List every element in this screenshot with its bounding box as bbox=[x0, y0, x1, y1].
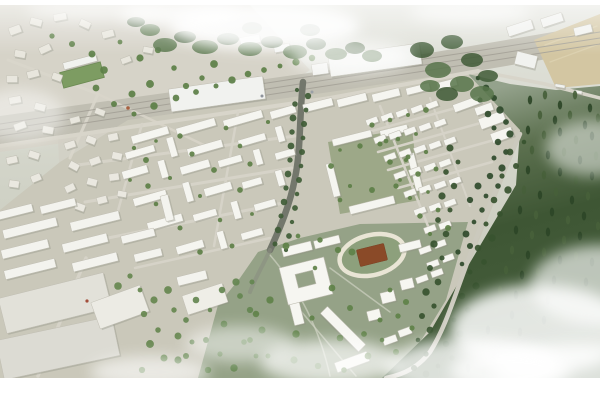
tree bbox=[467, 197, 473, 203]
tree bbox=[388, 288, 393, 293]
tree bbox=[193, 89, 199, 95]
conifer bbox=[562, 236, 566, 245]
accent-dot bbox=[311, 91, 314, 94]
tree bbox=[395, 313, 400, 318]
tree bbox=[296, 234, 301, 239]
tree bbox=[275, 227, 281, 233]
tree bbox=[214, 84, 219, 89]
tree bbox=[317, 237, 322, 242]
tree bbox=[154, 202, 159, 207]
tree bbox=[193, 297, 200, 304]
tree bbox=[396, 137, 400, 141]
tree bbox=[503, 119, 509, 125]
conifer bbox=[554, 188, 558, 197]
tree bbox=[380, 338, 385, 343]
tree bbox=[266, 296, 273, 303]
tree bbox=[168, 176, 172, 180]
tree bbox=[305, 93, 311, 99]
tree bbox=[250, 212, 254, 216]
tree bbox=[171, 307, 176, 312]
conifer bbox=[530, 146, 534, 155]
tree bbox=[247, 161, 252, 166]
tree bbox=[417, 213, 422, 218]
conifer bbox=[586, 192, 590, 201]
tree bbox=[475, 245, 481, 251]
tree bbox=[406, 155, 411, 160]
building-roof bbox=[9, 180, 20, 188]
tree bbox=[419, 313, 425, 319]
tree bbox=[230, 364, 237, 371]
tree bbox=[261, 67, 267, 73]
tree bbox=[281, 199, 288, 206]
tree bbox=[403, 299, 409, 305]
tree bbox=[485, 111, 492, 118]
tree bbox=[111, 101, 117, 107]
conifer bbox=[542, 171, 546, 180]
tree bbox=[232, 278, 239, 285]
tree bbox=[199, 75, 204, 80]
conifer bbox=[574, 176, 578, 185]
tree bbox=[435, 217, 441, 223]
conifer bbox=[566, 216, 570, 225]
tree bbox=[238, 144, 243, 149]
conifer bbox=[526, 166, 530, 175]
tree bbox=[369, 187, 375, 193]
tree bbox=[377, 317, 382, 322]
tree bbox=[230, 244, 235, 249]
tree bbox=[285, 171, 292, 178]
tree bbox=[228, 76, 235, 83]
cloud bbox=[185, 326, 295, 362]
conifer bbox=[543, 91, 547, 100]
tree bbox=[131, 111, 136, 116]
conifer bbox=[568, 111, 572, 120]
tree bbox=[348, 248, 355, 255]
tree bbox=[299, 149, 305, 155]
tree bbox=[507, 149, 514, 156]
tree bbox=[278, 64, 283, 69]
tree bbox=[491, 125, 496, 130]
tree bbox=[218, 218, 222, 222]
tree bbox=[467, 243, 473, 249]
accent-dot bbox=[261, 95, 264, 98]
tree bbox=[171, 65, 177, 71]
tree bbox=[439, 255, 444, 260]
conifer bbox=[526, 251, 530, 260]
tree bbox=[338, 148, 342, 152]
tree bbox=[422, 288, 429, 295]
tree bbox=[393, 183, 398, 188]
rendering-canvas bbox=[0, 5, 600, 378]
grove bbox=[470, 86, 494, 102]
aerial-masterplan-rendering bbox=[0, 0, 600, 400]
tree bbox=[357, 143, 362, 148]
tree bbox=[237, 187, 243, 193]
tree bbox=[210, 60, 218, 68]
tree bbox=[414, 132, 418, 136]
conifer bbox=[528, 96, 532, 105]
conifer bbox=[542, 248, 546, 257]
conifer bbox=[573, 91, 577, 100]
tree bbox=[219, 287, 225, 293]
conifer bbox=[553, 116, 557, 125]
tree bbox=[434, 167, 439, 172]
tree bbox=[198, 194, 202, 198]
tree bbox=[438, 192, 445, 199]
tree bbox=[146, 80, 154, 88]
tree bbox=[479, 207, 484, 212]
tree bbox=[286, 233, 292, 239]
tree bbox=[428, 232, 432, 236]
conifer bbox=[534, 211, 538, 220]
tree bbox=[384, 139, 389, 144]
tree bbox=[183, 317, 189, 323]
tree bbox=[175, 333, 182, 340]
tree bbox=[338, 198, 343, 203]
tree bbox=[237, 293, 243, 299]
tree bbox=[128, 178, 132, 182]
tree bbox=[114, 282, 122, 290]
conifer bbox=[542, 131, 546, 140]
tree bbox=[136, 54, 143, 61]
tree bbox=[335, 247, 341, 253]
tree bbox=[283, 185, 288, 190]
tree bbox=[128, 90, 135, 97]
tree bbox=[488, 234, 495, 241]
tree bbox=[487, 173, 493, 179]
building bbox=[7, 76, 19, 85]
tree bbox=[427, 327, 434, 334]
tree bbox=[496, 106, 503, 113]
tree bbox=[498, 164, 505, 171]
tree bbox=[290, 220, 294, 224]
tree bbox=[406, 113, 410, 117]
tree bbox=[292, 101, 298, 107]
tree bbox=[426, 190, 430, 194]
tree bbox=[146, 340, 154, 348]
tree bbox=[295, 192, 299, 196]
tree bbox=[328, 163, 334, 169]
tree bbox=[141, 311, 147, 317]
conifer bbox=[570, 196, 574, 205]
conifer bbox=[596, 222, 600, 231]
tree bbox=[431, 303, 436, 308]
tree bbox=[398, 178, 402, 182]
tree bbox=[173, 95, 180, 102]
conifer bbox=[538, 191, 542, 200]
tree bbox=[253, 311, 259, 317]
grove bbox=[461, 53, 483, 67]
conifer bbox=[550, 208, 554, 217]
accent-dot bbox=[126, 106, 130, 110]
tree bbox=[93, 85, 100, 92]
tree bbox=[296, 177, 302, 183]
tree bbox=[197, 249, 203, 255]
tree bbox=[415, 171, 421, 177]
conifer bbox=[526, 126, 530, 135]
tree bbox=[150, 102, 157, 109]
tree bbox=[211, 167, 217, 173]
conifer bbox=[578, 232, 582, 241]
tree bbox=[513, 163, 519, 169]
tree bbox=[292, 330, 299, 337]
top-haze bbox=[0, 5, 600, 55]
tree bbox=[301, 136, 306, 141]
tree bbox=[472, 282, 479, 289]
tree bbox=[369, 122, 374, 127]
tree bbox=[446, 144, 453, 151]
tree bbox=[504, 186, 511, 193]
tree bbox=[304, 108, 309, 113]
conifer bbox=[510, 246, 514, 255]
tree bbox=[495, 183, 501, 189]
tree bbox=[347, 305, 353, 311]
tree bbox=[288, 143, 295, 150]
tree bbox=[221, 321, 228, 328]
conifer bbox=[514, 226, 518, 235]
tree bbox=[143, 157, 149, 163]
tree bbox=[224, 126, 229, 131]
tree bbox=[299, 164, 304, 169]
tree bbox=[463, 231, 470, 238]
tree bbox=[287, 157, 292, 162]
tree bbox=[481, 259, 487, 265]
tree bbox=[423, 107, 429, 113]
tree bbox=[443, 169, 449, 175]
tree bbox=[132, 146, 136, 150]
tree bbox=[409, 325, 414, 330]
tree bbox=[484, 194, 489, 199]
tree bbox=[445, 225, 451, 231]
tree bbox=[388, 118, 393, 123]
tree bbox=[127, 273, 132, 278]
tree bbox=[430, 240, 437, 247]
tree bbox=[266, 120, 270, 124]
tree bbox=[295, 88, 299, 92]
tree bbox=[460, 262, 465, 267]
tree bbox=[468, 270, 473, 275]
tree bbox=[283, 243, 290, 250]
tree bbox=[278, 213, 283, 218]
tree bbox=[436, 208, 441, 213]
tree bbox=[497, 211, 503, 217]
tree bbox=[474, 182, 481, 189]
conifer bbox=[588, 104, 592, 113]
tree bbox=[483, 221, 488, 226]
tree bbox=[522, 140, 527, 145]
tree bbox=[492, 156, 497, 161]
tree bbox=[448, 208, 453, 213]
tree bbox=[100, 66, 108, 74]
building-roof bbox=[109, 173, 120, 181]
tree bbox=[377, 141, 382, 146]
tree bbox=[189, 151, 194, 156]
conifer bbox=[520, 271, 524, 280]
conifer bbox=[522, 186, 526, 195]
conifer bbox=[582, 212, 586, 221]
tree bbox=[177, 133, 182, 138]
tree bbox=[491, 197, 498, 204]
tree bbox=[443, 231, 450, 238]
conifer bbox=[504, 266, 508, 275]
tree bbox=[247, 307, 253, 313]
grove bbox=[436, 87, 458, 101]
tree bbox=[138, 288, 143, 293]
tree bbox=[329, 285, 336, 292]
tree bbox=[451, 183, 457, 189]
conifer bbox=[530, 231, 534, 240]
grove bbox=[420, 80, 440, 92]
tree bbox=[301, 121, 307, 127]
tree bbox=[506, 130, 513, 137]
building-roof bbox=[117, 190, 127, 197]
conifer bbox=[518, 206, 522, 215]
tree bbox=[472, 220, 477, 225]
conifer bbox=[558, 101, 562, 110]
tree bbox=[455, 249, 460, 254]
tree bbox=[348, 184, 352, 188]
tree bbox=[145, 183, 151, 189]
building-roof bbox=[7, 76, 18, 83]
tree bbox=[416, 338, 421, 343]
tree bbox=[289, 129, 294, 134]
tree bbox=[309, 315, 314, 320]
tree bbox=[208, 308, 213, 313]
tree bbox=[249, 279, 254, 284]
tree bbox=[387, 159, 393, 165]
conifer bbox=[546, 228, 550, 237]
grove bbox=[478, 70, 498, 82]
conifer bbox=[538, 111, 542, 120]
tree bbox=[155, 327, 161, 333]
grove bbox=[425, 62, 451, 78]
tree bbox=[290, 115, 297, 122]
tree bbox=[292, 205, 298, 211]
building bbox=[8, 180, 20, 190]
tree bbox=[164, 286, 172, 294]
tree bbox=[499, 173, 504, 178]
tree bbox=[245, 71, 252, 78]
tree bbox=[361, 331, 367, 337]
tree bbox=[154, 139, 158, 143]
tree bbox=[456, 160, 461, 165]
tree bbox=[183, 353, 189, 359]
tree bbox=[495, 139, 501, 145]
tree bbox=[427, 265, 433, 271]
tree bbox=[177, 225, 182, 230]
tree bbox=[273, 242, 278, 247]
tree bbox=[150, 296, 157, 303]
accent-dot bbox=[85, 299, 88, 302]
tree bbox=[408, 196, 412, 200]
tree bbox=[313, 266, 318, 271]
tree bbox=[435, 279, 442, 286]
tree bbox=[424, 150, 428, 154]
tree bbox=[183, 83, 189, 89]
tree bbox=[459, 293, 465, 299]
